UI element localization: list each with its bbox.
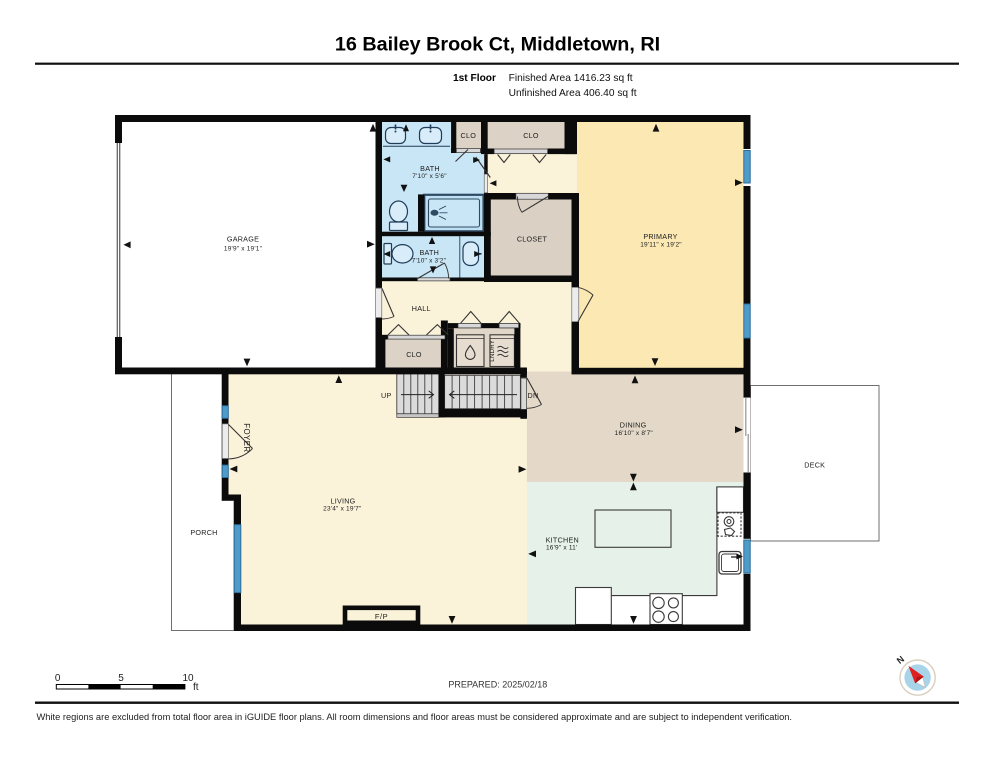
svg-text:16'9" x 11': 16'9" x 11' bbox=[546, 545, 577, 552]
svg-text:16'10" x 8'7": 16'10" x 8'7" bbox=[615, 430, 654, 437]
svg-text:CLO: CLO bbox=[523, 131, 539, 140]
svg-text:UP: UP bbox=[381, 391, 392, 400]
svg-text:CLO: CLO bbox=[406, 350, 422, 359]
svg-text:0: 0 bbox=[55, 673, 61, 684]
svg-text:1st Floor: 1st Floor bbox=[453, 73, 496, 84]
svg-text:Finished Area 1416.23 sq ft: Finished Area 1416.23 sq ft bbox=[509, 73, 633, 84]
svg-text:F/P: F/P bbox=[375, 612, 388, 621]
svg-text:19'11" x 19'2": 19'11" x 19'2" bbox=[640, 241, 682, 248]
svg-text:BATH: BATH bbox=[420, 164, 440, 173]
svg-text:FOYER: FOYER bbox=[242, 423, 251, 452]
svg-text:Unfinished Area 406.40 sq ft: Unfinished Area 406.40 sq ft bbox=[509, 88, 637, 99]
svg-text:5: 5 bbox=[118, 673, 124, 684]
svg-text:PORCH: PORCH bbox=[190, 528, 217, 537]
svg-text:PREPARED: 2025/02/18: PREPARED: 2025/02/18 bbox=[448, 680, 547, 690]
svg-text:LNDRY: LNDRY bbox=[489, 340, 496, 362]
svg-text:PRIMARY: PRIMARY bbox=[643, 232, 677, 241]
svg-text:DN: DN bbox=[528, 391, 539, 400]
svg-text:ft: ft bbox=[193, 682, 199, 693]
svg-text:HALL: HALL bbox=[412, 304, 431, 313]
svg-text:16 Bailey Brook Ct, Middletown: 16 Bailey Brook Ct, Middletown, RI bbox=[335, 33, 660, 55]
svg-text:White regions are excluded fro: White regions are excluded from total fl… bbox=[37, 712, 793, 722]
svg-text:KITCHEN: KITCHEN bbox=[546, 536, 579, 545]
svg-text:BATH: BATH bbox=[419, 248, 439, 257]
svg-text:LIVING: LIVING bbox=[330, 496, 355, 505]
svg-text:CLOSET: CLOSET bbox=[517, 234, 548, 243]
svg-text:7'10" x 3'2": 7'10" x 3'2" bbox=[412, 258, 447, 265]
svg-text:DINING: DINING bbox=[620, 420, 647, 429]
svg-text:DECK: DECK bbox=[804, 461, 825, 470]
svg-text:CLO: CLO bbox=[461, 131, 477, 140]
svg-text:7'10" x 5'6": 7'10" x 5'6" bbox=[412, 173, 447, 180]
svg-text:19'9" x 19'1": 19'9" x 19'1" bbox=[224, 246, 263, 253]
svg-text:23'4" x 19'7": 23'4" x 19'7" bbox=[323, 506, 362, 513]
svg-text:GARAGE: GARAGE bbox=[227, 234, 259, 243]
